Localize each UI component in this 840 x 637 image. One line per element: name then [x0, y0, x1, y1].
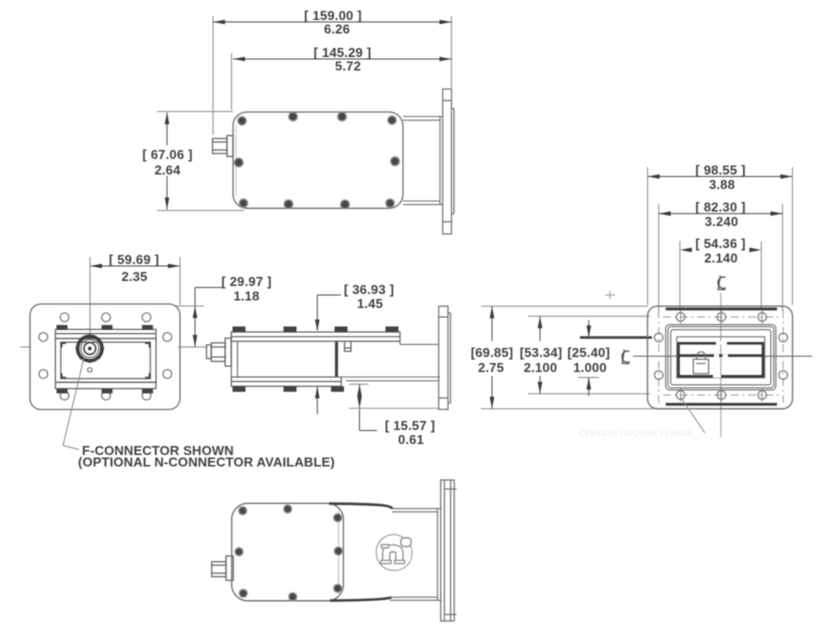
svg-text:[ 98.55 ]: [ 98.55 ] — [695, 163, 745, 178]
svg-text:1.000: 1.000 — [573, 360, 607, 375]
svg-text:6.26: 6.26 — [324, 22, 350, 37]
svg-text:[69.85]: [69.85] — [471, 345, 514, 360]
svg-text:2.100: 2.100 — [524, 360, 558, 375]
svg-text:[ 54.36 ]: [ 54.36 ] — [695, 236, 745, 251]
svg-text:3.88: 3.88 — [709, 177, 735, 192]
svg-text:CPR137G GROOVE FLANGE: CPR137G GROOVE FLANGE — [579, 428, 694, 438]
svg-text:[ 29.97 ]: [ 29.97 ] — [221, 274, 271, 289]
svg-text:[ 67.06 ]: [ 67.06 ] — [142, 147, 192, 162]
svg-text:1.18: 1.18 — [233, 289, 259, 304]
svg-text:[ 82.30 ]: [ 82.30 ] — [695, 200, 745, 215]
svg-text:(OPTIONAL N-CONNECTOR AVAILABL: (OPTIONAL N-CONNECTOR AVAILABLE) — [78, 455, 335, 470]
svg-text:2.75: 2.75 — [478, 360, 504, 375]
svg-text:5.72: 5.72 — [335, 59, 361, 74]
svg-text:0.61: 0.61 — [398, 432, 424, 447]
svg-text:2.35: 2.35 — [121, 269, 147, 284]
svg-text:[ 36.93 ]: [ 36.93 ] — [344, 282, 394, 297]
svg-text:2.64: 2.64 — [154, 163, 181, 178]
svg-text:3.240: 3.240 — [705, 214, 739, 229]
svg-text:2.140: 2.140 — [704, 251, 738, 266]
svg-text:1.45: 1.45 — [357, 296, 383, 311]
svg-text:[ 15.57 ]: [ 15.57 ] — [385, 418, 435, 433]
svg-text:[ 59.69 ]: [ 59.69 ] — [109, 252, 159, 267]
svg-text:[53.34]: [53.34] — [520, 345, 563, 360]
svg-text:[25.40]: [25.40] — [567, 345, 610, 360]
